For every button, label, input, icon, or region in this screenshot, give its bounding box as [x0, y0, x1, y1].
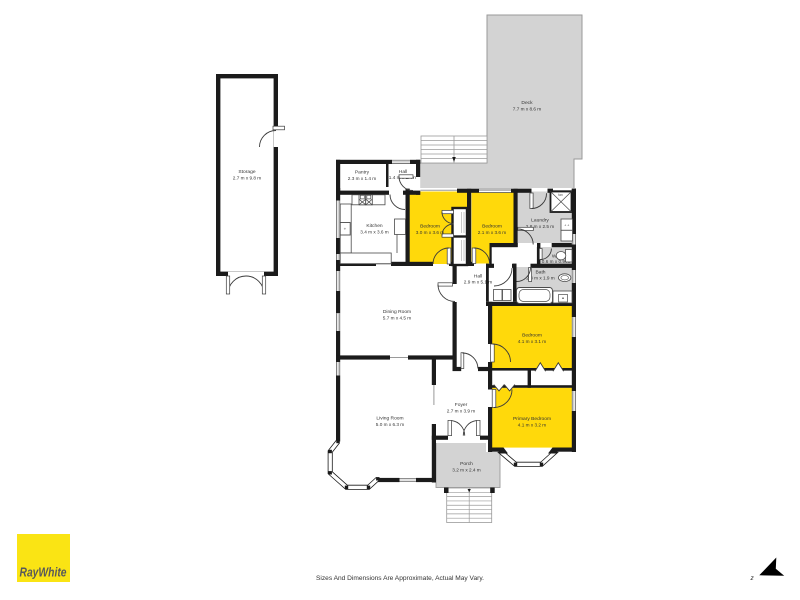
svg-text:Storage: Storage — [238, 169, 255, 175]
svg-text:2.1 m x 3.6 m: 2.1 m x 3.6 m — [478, 230, 506, 235]
svg-text:RayWhite: RayWhite — [20, 566, 67, 580]
svg-text:Foyer: Foyer — [455, 402, 468, 408]
svg-text:Dining Room: Dining Room — [383, 309, 411, 315]
svg-text:5.0 m x 6.3 m: 5.0 m x 6.3 m — [376, 422, 404, 427]
svg-text:+: + — [344, 227, 347, 232]
svg-text:4.1 m x 3.2 m: 4.1 m x 3.2 m — [518, 422, 546, 427]
svg-text:Bedroom: Bedroom — [482, 224, 502, 230]
svg-text:Deck: Deck — [521, 100, 533, 106]
svg-text:Bath: Bath — [535, 270, 545, 276]
svg-text:Bedroom: Bedroom — [522, 333, 542, 339]
svg-text:Living Room: Living Room — [376, 416, 403, 422]
svg-text:2.7 m x 9.8 m: 2.7 m x 9.8 m — [233, 175, 261, 180]
svg-text:Hall: Hall — [474, 273, 482, 279]
svg-text:Pantry: Pantry — [355, 170, 370, 176]
svg-text:Kitchen: Kitchen — [366, 223, 383, 229]
svg-text:5.7 m x 4.5 m: 5.7 m x 4.5 m — [383, 315, 411, 320]
svg-text:7.7 m x 8.6 m: 7.7 m x 8.6 m — [513, 106, 541, 111]
svg-text:Hall: Hall — [399, 169, 407, 175]
svg-text:3.2 m x 2.4 m: 3.2 m x 2.4 m — [452, 467, 480, 472]
svg-text:fan: fan — [558, 193, 563, 197]
svg-text:+ +: + + — [564, 224, 569, 228]
svg-text:2.7 m x 3.9 m: 2.7 m x 3.9 m — [447, 408, 475, 413]
svg-text:Laundry: Laundry — [531, 218, 549, 224]
svg-text:4.1 m x 3.1 m: 4.1 m x 3.1 m — [518, 339, 546, 344]
svg-text:Sizes And Dimensions Are Appro: Sizes And Dimensions Are Approximate, Ac… — [316, 575, 484, 582]
svg-text:Bedroom: Bedroom — [420, 224, 440, 230]
svg-text:Porch: Porch — [460, 461, 473, 467]
svg-text:3.0 m x 3.6 m: 3.0 m x 3.6 m — [416, 230, 444, 235]
svg-text:3.4 m x 3.6 m: 3.4 m x 3.6 m — [360, 229, 388, 234]
svg-text:Primary Bedroom: Primary Bedroom — [513, 416, 551, 422]
svg-text:2.3 m x 1.4 m: 2.3 m x 1.4 m — [348, 176, 376, 181]
